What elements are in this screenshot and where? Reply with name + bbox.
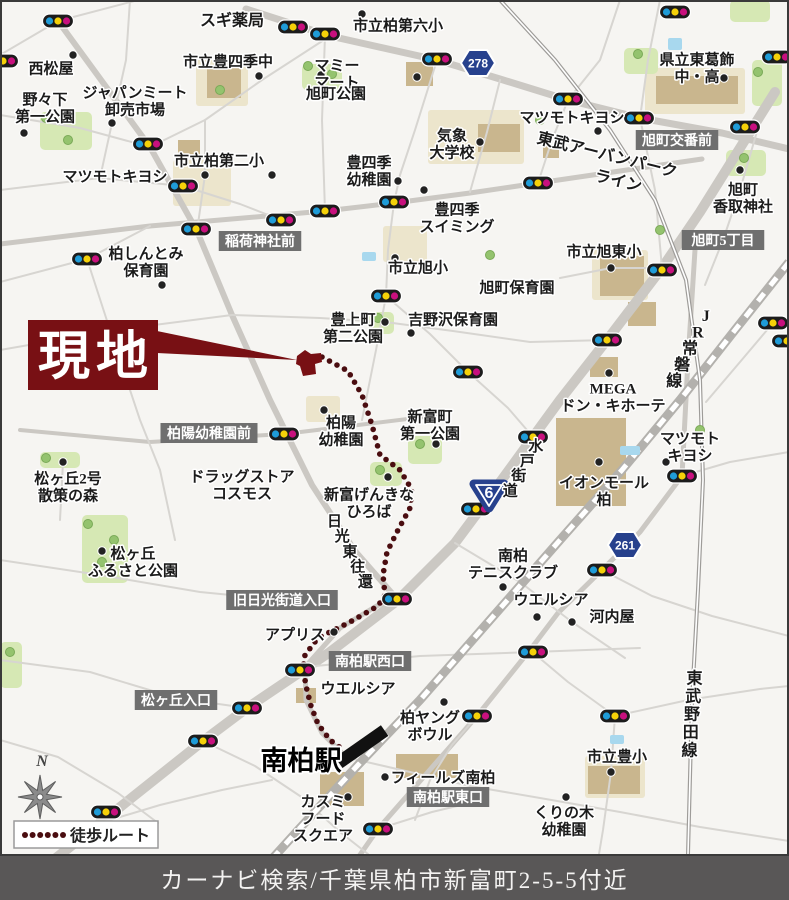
shield-number: 261 <box>615 539 635 553</box>
traffic-signal-icon <box>647 263 678 277</box>
traffic-signal-icon <box>624 111 655 125</box>
place-label: 第一公園 <box>15 107 75 125</box>
signal-yellow-lamp <box>243 704 250 711</box>
walk-route-dot <box>406 481 412 487</box>
walk-route-dot <box>370 427 376 433</box>
walk-route-dot <box>306 694 312 700</box>
walk-route-dot <box>399 521 405 527</box>
signal-red-lamp <box>482 712 489 719</box>
traffic-signal-icon <box>188 734 219 748</box>
signal-red-lamp <box>538 648 545 655</box>
signal-red-lamp <box>402 595 409 602</box>
poi-dot <box>98 547 106 555</box>
walk-route-dot <box>381 585 387 591</box>
signal-yellow-lamp <box>199 737 206 744</box>
walk-route-dot <box>308 703 314 709</box>
place-label: 気象 <box>437 126 467 144</box>
route-shield-278: 278 <box>461 50 495 76</box>
tree-icon <box>376 466 385 475</box>
legend-dot <box>22 832 28 838</box>
poi-dot <box>381 318 389 326</box>
signal-yellow-lamp <box>144 140 151 147</box>
traffic-signal-icon <box>232 701 263 715</box>
place-label: 旭町保育園 <box>478 278 554 296</box>
signal-blue-lamp <box>650 266 657 273</box>
signal-blue-lamp <box>313 207 320 214</box>
walk-route-dot <box>307 646 313 652</box>
traffic-signal-icon <box>382 592 413 606</box>
poi-dot <box>358 10 366 18</box>
signal-yellow-lamp <box>741 123 748 130</box>
traffic-signal-icon <box>660 5 691 19</box>
traffic-signal-icon <box>730 120 761 134</box>
tree-icon <box>304 62 313 71</box>
place-label: 柏しんとみ <box>108 244 183 262</box>
poi-dot <box>381 773 389 781</box>
walk-route-dot <box>324 733 330 739</box>
place-label: ドラッグストア <box>189 467 294 485</box>
signal-blue-lamp <box>521 433 528 440</box>
traffic-signal-icon <box>72 252 103 266</box>
walk-route-dot <box>407 506 413 512</box>
route-shield-261: 261 <box>608 532 642 558</box>
place-label: マツモト <box>660 431 720 447</box>
line-name-label: 戸 <box>520 453 535 470</box>
signal-red-lamp <box>620 712 627 719</box>
walk-route-dot <box>304 686 310 692</box>
signal-red-lamp <box>201 225 208 232</box>
walk-route-dot <box>311 711 317 717</box>
traffic-signal-icon <box>310 204 341 218</box>
line-name-label: 線 <box>666 371 682 390</box>
traffic-signal-icon <box>181 222 212 236</box>
place-label: ドン・キホーテ <box>560 397 665 414</box>
signal-blue-lamp <box>670 472 677 479</box>
tree-icon <box>6 648 15 657</box>
place-label: フィールズ南柏 <box>391 768 496 786</box>
signal-blue-lamp <box>663 8 670 15</box>
signal-yellow-lamp <box>671 8 678 15</box>
signal-blue-lamp <box>374 292 381 299</box>
signal-red-lamp <box>383 825 390 832</box>
walk-route-dot <box>377 451 383 457</box>
signal-blue-lamp <box>556 95 563 102</box>
line-name-label: 田 <box>683 724 699 742</box>
poi-dot <box>255 72 263 80</box>
place-label: 野々下 <box>22 91 67 108</box>
pond <box>610 735 624 744</box>
signal-red-lamp <box>687 472 694 479</box>
signal-red-lamp <box>289 430 296 437</box>
signal-red-lamp <box>778 319 785 326</box>
signal-yellow-lamp <box>658 266 665 273</box>
signal-blue-lamp <box>603 712 610 719</box>
place-label: キヨシ <box>667 448 712 464</box>
signal-yellow-lamp <box>277 216 284 223</box>
traffic-signal-icon <box>379 195 410 209</box>
traffic-signal-icon <box>592 333 623 347</box>
place-label: 幼稚園 <box>318 430 363 448</box>
compass-center <box>37 794 43 800</box>
signal-yellow-lamp <box>534 179 541 186</box>
signal-blue-lamp <box>765 53 772 60</box>
poi-dot <box>605 369 613 377</box>
poi-dot <box>330 628 338 636</box>
signal-red-lamp <box>607 566 614 573</box>
signal-red-lamp <box>573 95 580 102</box>
tree-icon <box>754 68 763 77</box>
poi-dot <box>201 171 209 179</box>
boxed-label: 旭町交番前 <box>641 132 712 149</box>
traffic-signal-icon <box>453 365 484 379</box>
place-label: MEGA <box>590 381 637 397</box>
legend-dot <box>37 832 43 838</box>
place-label: マツモトキヨシ <box>519 110 624 126</box>
signal-blue-lamp <box>288 666 295 673</box>
poi-dot <box>568 618 576 626</box>
place-label: 大学校 <box>429 143 475 161</box>
caption-text: カーナビ検索/千葉県柏市新富町2-5-5付近 <box>160 861 628 895</box>
poi-dot <box>407 329 415 337</box>
traffic-signal-icon <box>462 709 493 723</box>
signal-blue-lamp <box>46 17 53 24</box>
signal-red-lamp <box>208 737 215 744</box>
place-label: イオンモール <box>559 474 649 491</box>
traffic-signal-icon <box>762 50 789 64</box>
walk-route-dot <box>373 435 379 441</box>
walk-route-dot <box>352 379 358 385</box>
signal-blue-lamp <box>464 505 471 512</box>
signal-blue-lamp <box>136 140 143 147</box>
poi-dot <box>420 186 428 194</box>
walk-route-dot <box>363 402 369 408</box>
place-label: 第一公園 <box>400 424 460 442</box>
traffic-signal-icon <box>518 645 549 659</box>
caption-bar: カーナビ検索/千葉県柏市新富町2-5-5付近 <box>0 856 789 900</box>
walk-route-dot <box>383 457 389 463</box>
tree-icon <box>84 520 93 529</box>
walk-route-dot <box>395 528 401 534</box>
signal-yellow-lamp <box>289 23 296 30</box>
legend-dot <box>45 832 51 838</box>
signal-yellow-lamp <box>769 319 776 326</box>
traffic-signal-icon <box>772 334 789 348</box>
tree-icon <box>64 136 73 145</box>
traffic-signal-icon <box>91 805 122 819</box>
place-label: 旭町公園 <box>305 84 366 102</box>
signal-yellow-lamp <box>603 336 610 343</box>
park-area <box>730 0 770 22</box>
signal-yellow-lamp <box>374 825 381 832</box>
signal-red-lamp <box>750 123 757 130</box>
boxed-label: 南柏駅西口 <box>335 653 405 670</box>
place-label: 南柏 <box>498 546 528 564</box>
boxed-label: 旧日光街道入口 <box>233 592 331 609</box>
place-label: 市立豊小 <box>587 747 647 765</box>
signal-yellow-lamp <box>433 55 440 62</box>
walk-route-dot <box>382 559 388 565</box>
tree-icon <box>740 154 749 163</box>
signal-blue-lamp <box>385 595 392 602</box>
traffic-signal-icon <box>278 20 309 34</box>
place-label: くりの木 <box>534 803 595 821</box>
poi-dot <box>499 583 507 591</box>
poi-dot <box>320 406 328 414</box>
building <box>556 418 626 506</box>
legend-dot <box>60 832 66 838</box>
place-label: ウエルシア <box>320 680 395 697</box>
walk-route-dot <box>364 610 370 616</box>
place-label: 河内屋 <box>589 607 634 625</box>
walk-route-dot <box>319 726 325 732</box>
line-name-label: 街 <box>510 467 526 485</box>
boxed-label: 松ヶ丘入口 <box>141 692 211 709</box>
place-label: スギ薬局 <box>200 11 264 30</box>
place-label: ひろば <box>346 503 391 520</box>
traffic-signal-icon <box>422 52 453 66</box>
line-name-label: 日 <box>327 513 342 530</box>
walk-route-dot <box>397 467 403 473</box>
walk-route-dot <box>390 462 396 468</box>
place-label: 幼稚園 <box>346 170 391 188</box>
poi-dot <box>394 177 402 185</box>
line-name-label: 光 <box>334 527 350 545</box>
place-label: 市立豊四季中 <box>183 52 273 70</box>
signal-red-lamp <box>252 704 259 711</box>
poi-dot <box>476 138 484 146</box>
walk-route-dot <box>342 366 348 372</box>
boxed-label: 南柏駅東口 <box>413 789 483 806</box>
traffic-signal-icon <box>371 289 402 303</box>
signal-red-lamp <box>286 216 293 223</box>
place-label: テニスクラブ <box>468 563 558 581</box>
line-name-label: 道 <box>503 481 518 499</box>
signal-red-lamp <box>680 8 687 15</box>
walk-route-dot <box>365 410 371 416</box>
signal-red-lamp <box>644 114 651 121</box>
compass-rose <box>18 775 62 819</box>
pond <box>668 38 682 50</box>
place-label: ふるさと公園 <box>88 562 178 579</box>
place-label: 県立東葛飾 <box>659 50 734 68</box>
legend-dot <box>30 832 36 838</box>
place-label: ジャパンミート <box>82 84 187 101</box>
place-label: ウエルシア <box>513 591 588 608</box>
signal-yellow-lamp <box>564 95 571 102</box>
signal-yellow-lamp <box>280 430 287 437</box>
walk-route-dot <box>391 536 397 542</box>
poi-dot <box>69 51 77 59</box>
boxed-label: 旭町5丁目 <box>691 232 755 249</box>
place-label: コスモス <box>212 486 272 502</box>
line-name-label: 還 <box>358 573 374 591</box>
pond <box>362 252 376 261</box>
walk-route-dot <box>302 653 308 659</box>
signal-red-lamp <box>612 336 619 343</box>
place-label: 中・高 <box>674 67 719 85</box>
line-name-label: 東 <box>342 542 357 560</box>
legend-walk-route-label: 徒歩ルート <box>69 826 150 845</box>
traffic-signal-icon <box>587 563 618 577</box>
place-label: 新富町 <box>407 407 452 425</box>
traffic-signal-icon <box>133 137 164 151</box>
signal-red-lamp <box>188 182 195 189</box>
place-label: 市立柏第六小 <box>353 16 443 34</box>
signal-blue-lamp <box>521 648 528 655</box>
walk-route-dot <box>356 387 362 393</box>
signal-blue-lamp <box>281 23 288 30</box>
signal-yellow-lamp <box>54 17 61 24</box>
place-label: ボウル <box>407 726 452 743</box>
signal-yellow-lamp <box>473 712 480 719</box>
place-label: 保育園 <box>122 261 168 279</box>
signal-red-lamp <box>473 368 480 375</box>
line-name-label: 東 <box>687 669 703 688</box>
place-label: 柏ヤング <box>400 708 460 726</box>
signal-blue-lamp <box>526 179 533 186</box>
station-name: 南柏駅 <box>261 746 342 776</box>
signal-yellow-lamp <box>472 505 479 512</box>
signal-blue-lamp <box>313 30 320 37</box>
walk-route-dot <box>347 372 353 378</box>
place-label: 松ヶ丘 <box>110 544 155 562</box>
place-label: 市立旭東小 <box>566 242 641 260</box>
line-name-label: 水 <box>528 437 544 455</box>
signal-red-lamp <box>111 808 118 815</box>
building <box>207 66 241 98</box>
traffic-signal-icon <box>168 179 199 193</box>
place-label: マミー <box>314 58 359 74</box>
place-label: 第二公園 <box>323 327 383 345</box>
signal-red-lamp <box>8 57 15 64</box>
line-name-label: 武 <box>685 687 701 706</box>
walk-route-dot <box>341 622 347 628</box>
place-label: 香取神社 <box>713 197 773 215</box>
traffic-signal-icon <box>523 176 554 190</box>
tree-icon <box>486 251 495 260</box>
map-canvas: 南柏駅 2786261 スギ薬局市立柏第六小西松屋市立豊四季中マミーマート県立東… <box>0 0 789 856</box>
line-name-label: 磐 <box>673 355 691 374</box>
tree-icon <box>110 536 119 545</box>
signal-red-lamp <box>305 666 312 673</box>
poi-dot <box>440 698 448 706</box>
signal-red-lamp <box>667 266 674 273</box>
signal-red-lamp <box>153 140 160 147</box>
place-label: 柏 <box>596 490 611 508</box>
signal-blue-lamp <box>456 368 463 375</box>
place-label: 松ヶ丘2号 <box>34 469 102 487</box>
place-label: フード <box>300 811 345 827</box>
walk-route-dot <box>334 362 340 368</box>
poi-dot <box>607 264 615 272</box>
poi-dot <box>533 613 541 621</box>
signal-blue-lamp <box>627 114 634 121</box>
line-name-label: R <box>692 324 704 341</box>
line-name-label: 野 <box>684 706 700 724</box>
signal-yellow-lamp <box>102 808 109 815</box>
signal-blue-lamp <box>171 182 178 189</box>
signal-yellow-lamp <box>321 207 328 214</box>
boxed-label: 柏陽幼稚園前 <box>167 425 251 442</box>
place-label: スクエア <box>293 827 353 844</box>
place-label: 市立柏第二小 <box>174 151 264 169</box>
place-label: 旭町 <box>727 180 758 198</box>
site-callout-label: 現地 <box>38 328 154 386</box>
signal-yellow-lamp <box>83 255 90 262</box>
signal-blue-lamp <box>235 704 242 711</box>
walk-route-dot <box>375 443 381 449</box>
walk-route-dot <box>327 358 333 364</box>
line-name-label: 線 <box>681 741 697 760</box>
signal-yellow-lamp <box>192 225 199 232</box>
shield-number: 6 <box>485 485 494 502</box>
poi-dot <box>595 458 603 466</box>
walk-route-dot <box>302 678 308 684</box>
traffic-signal-icon <box>758 316 789 330</box>
traffic-signal-icon <box>363 822 394 836</box>
signal-yellow-lamp <box>382 292 389 299</box>
place-label: 豊上町 <box>330 310 375 328</box>
place-label: 卸売市場 <box>105 100 165 118</box>
signal-red-lamp <box>543 179 550 186</box>
boxed-label: 稲荷神社前 <box>225 233 295 250</box>
signal-red-lamp <box>63 17 70 24</box>
poi-dot <box>59 458 67 466</box>
poi-dot <box>158 281 166 289</box>
walk-route-dot <box>381 568 387 574</box>
line-name-label: J <box>702 308 710 325</box>
poi-dot <box>413 73 421 81</box>
signal-blue-lamp <box>191 737 198 744</box>
walk-route-dot <box>387 543 393 549</box>
tree-icon <box>216 86 225 95</box>
poi-dot <box>108 119 116 127</box>
traffic-signal-icon <box>553 92 584 106</box>
traffic-signal-icon <box>0 54 19 68</box>
place-label: 柏陽 <box>326 413 356 431</box>
signal-red-lamp <box>399 198 406 205</box>
signal-blue-lamp <box>590 566 597 573</box>
poi-dot <box>562 793 570 801</box>
signal-blue-lamp <box>425 55 432 62</box>
place-label: 西松屋 <box>28 59 73 77</box>
traffic-signal-icon <box>600 709 631 723</box>
signal-red-lamp <box>298 23 305 30</box>
signal-yellow-lamp <box>611 712 618 719</box>
compass-north-label: N <box>35 753 49 770</box>
place-label: 新富げんきな <box>324 485 414 503</box>
poi-dot <box>384 473 392 481</box>
poi-dot <box>594 127 602 135</box>
tree-icon <box>656 226 665 235</box>
signal-yellow-lamp <box>321 30 328 37</box>
poi-dot <box>720 74 728 82</box>
signal-yellow-lamp <box>464 368 471 375</box>
signal-blue-lamp <box>75 255 82 262</box>
place-label: スイミング <box>419 217 494 235</box>
poi-dot <box>607 768 615 776</box>
walk-route-dot <box>314 719 320 725</box>
signal-yellow-lamp <box>393 595 400 602</box>
place-label: 散策の森 <box>38 486 99 504</box>
walk-route-dot <box>381 576 387 582</box>
signal-yellow-lamp <box>529 648 536 655</box>
access-map-page: 南柏駅 2786261 スギ薬局市立柏第六小西松屋市立豊四季中マミーマート県立東… <box>0 0 789 900</box>
signal-yellow-lamp <box>678 472 685 479</box>
shield-number: 278 <box>468 57 488 71</box>
signal-blue-lamp <box>595 336 602 343</box>
walk-route-dot <box>360 394 366 400</box>
